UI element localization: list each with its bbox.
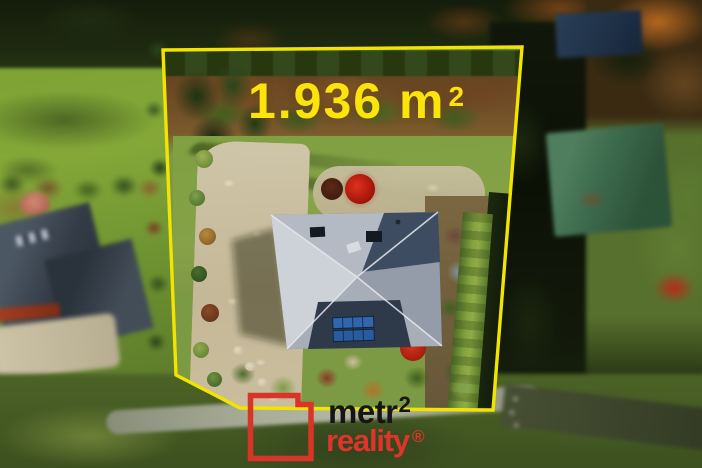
topiary-ball (189, 190, 205, 206)
topiary-ball (193, 342, 209, 358)
topiary-ball (199, 228, 216, 245)
red-japanese-maple (345, 174, 375, 204)
logo-word-bottom: reality (326, 423, 409, 458)
topiary-ball (195, 150, 213, 168)
stepping-stone (245, 362, 256, 371)
topiary-ball (191, 266, 207, 282)
green-roof-cabin (546, 123, 673, 237)
logo-word-top-superscript: 2 (399, 392, 411, 417)
aerial-property-photo: 1.936 m2 metr2 reality® (0, 0, 702, 468)
dark-shed (555, 10, 643, 58)
red-bush-south (400, 335, 426, 361)
topiary-ball (207, 372, 222, 387)
area-superscript: 2 (448, 81, 464, 112)
logo-wordmark-reality: reality® (326, 425, 425, 456)
stepping-stone (233, 346, 244, 355)
stepping-stone (257, 378, 268, 387)
dark-red-shrub (321, 178, 343, 200)
logo-square-icon (244, 390, 318, 464)
area-watermark: 1.936 m2 (170, 76, 542, 126)
topiary-ball (201, 304, 219, 322)
logo-registered-mark: ® (412, 427, 425, 446)
area-value: 1.936 m (248, 73, 445, 129)
logo-square-path (251, 396, 312, 459)
